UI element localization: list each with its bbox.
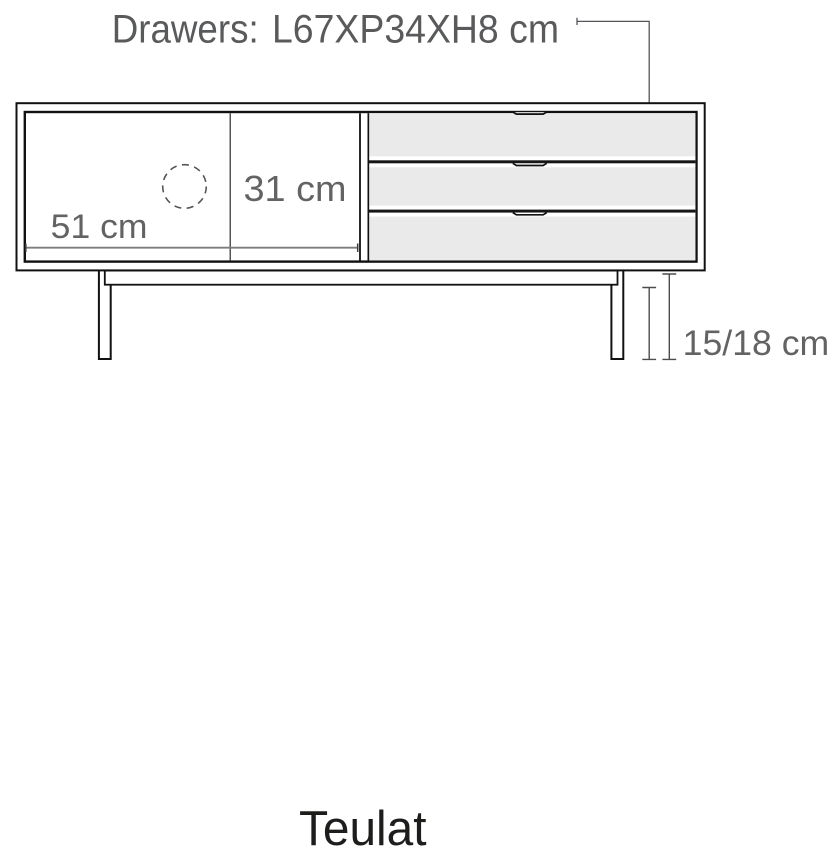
svg-text:31 cm: 31 cm <box>244 168 347 209</box>
svg-text:Teulat: Teulat <box>299 802 427 856</box>
svg-text:51 cm: 51 cm <box>51 208 148 246</box>
svg-text:15/18 cm: 15/18 cm <box>683 324 830 363</box>
svg-text:L67XP34XH8 cm: L67XP34XH8 cm <box>272 7 559 51</box>
svg-text:Drawers:: Drawers: <box>112 7 259 51</box>
